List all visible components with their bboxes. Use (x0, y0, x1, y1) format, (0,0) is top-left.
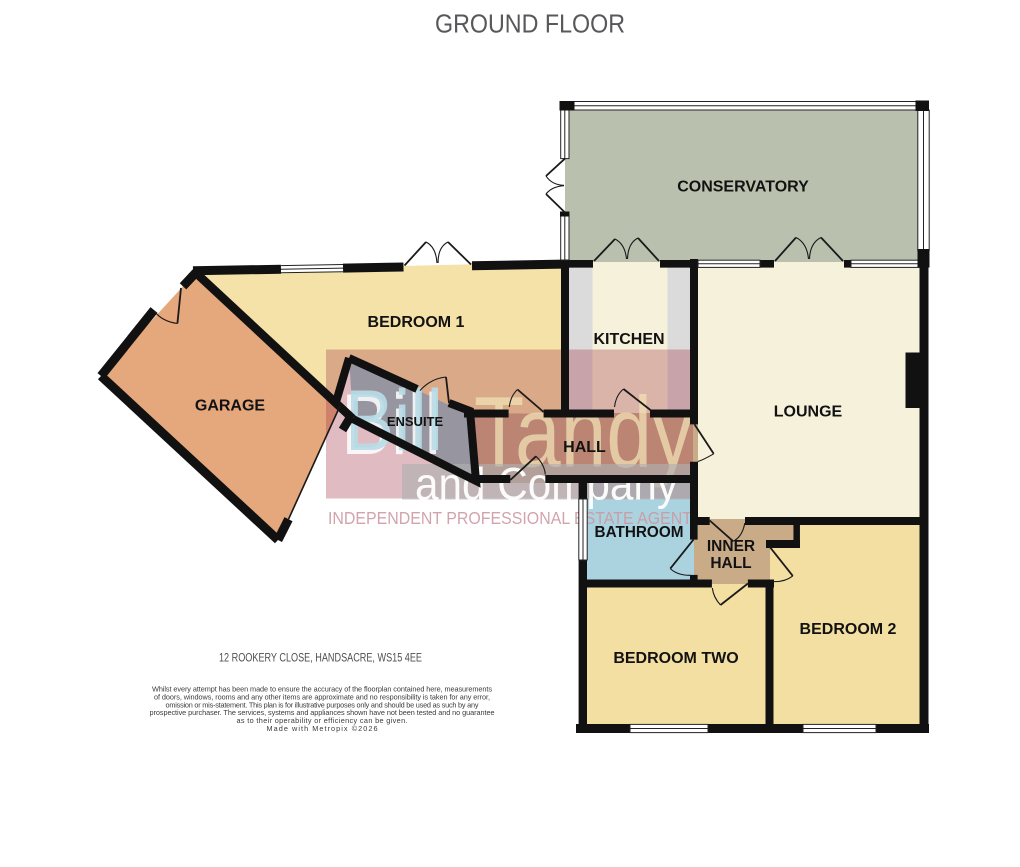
svg-text:HALL: HALL (563, 439, 606, 456)
svg-text:CONSERVATORY: CONSERVATORY (677, 179, 809, 196)
svg-text:Made with Metropix ©2026: Made with Metropix ©2026 (267, 724, 378, 733)
svg-text:ENSUITE: ENSUITE (387, 414, 444, 429)
svg-text:GARAGE: GARAGE (195, 398, 266, 415)
svg-text:BATHROOM: BATHROOM (595, 524, 684, 541)
svg-text:INNER: INNER (707, 538, 755, 555)
svg-text:KITCHEN: KITCHEN (593, 331, 664, 348)
svg-text:BEDROOM 1: BEDROOM 1 (368, 314, 465, 331)
svg-text:BEDROOM TWO: BEDROOM TWO (613, 650, 738, 667)
svg-text:BEDROOM 2: BEDROOM 2 (800, 621, 897, 638)
svg-text:LOUNGE: LOUNGE (774, 404, 843, 421)
svg-text:12 ROOKERY CLOSE, HANDSACRE, W: 12 ROOKERY CLOSE, HANDSACRE, WS15 4EE (219, 651, 422, 665)
svg-text:GROUND FLOOR: GROUND FLOOR (435, 9, 625, 39)
svg-text:HALL: HALL (710, 555, 751, 572)
